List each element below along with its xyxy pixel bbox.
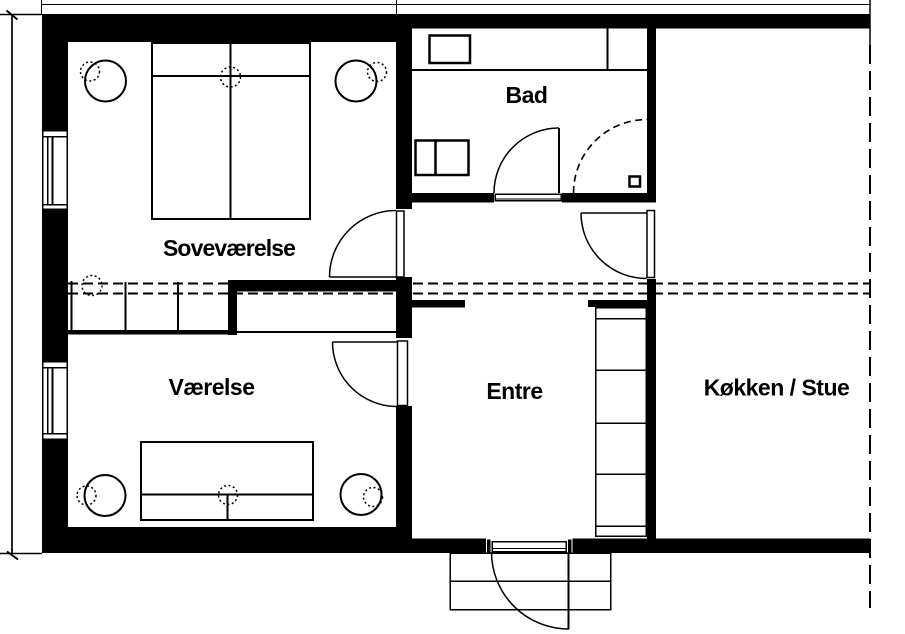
svg-text:Køkken / Stue: Køkken / Stue [704, 375, 850, 401]
svg-text:Entre: Entre [486, 378, 542, 404]
svg-text:Værelse: Værelse [168, 374, 254, 400]
svg-text:Soveværelse: Soveværelse [163, 235, 295, 261]
svg-text:Bad: Bad [506, 82, 548, 108]
